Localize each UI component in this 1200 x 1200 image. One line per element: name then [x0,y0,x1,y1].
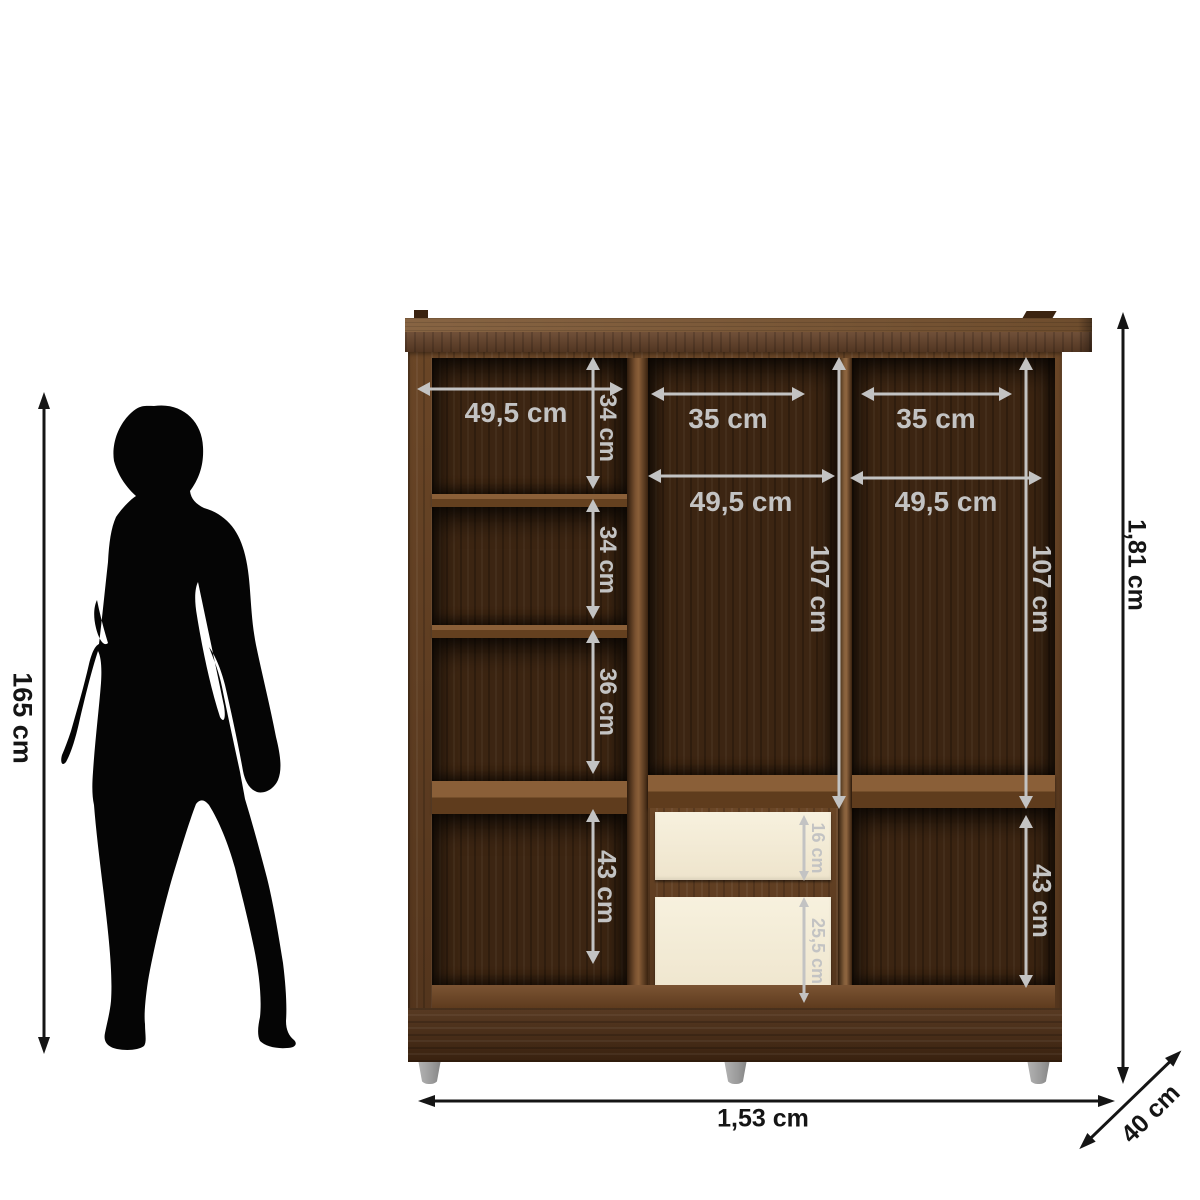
dim-arrow-total-height [1114,313,1131,1083]
dim-label-left-width: 49,5 cm [465,399,568,427]
wardrobe-top-board [405,318,1092,352]
dim-arrow-right-rod [862,385,1011,402]
wardrobe-base [408,1008,1062,1062]
furniture-dimension-diagram: 49,5 cm 34 cm 34 cm 36 cm 43 cm 35 cm 49… [0,0,1200,1200]
dim-label-right-width: 49,5 cm [895,488,998,516]
dim-label-right-bottom-cell: 43 cm [1029,864,1055,938]
dim-label-middle-height: 107 cm [807,545,833,633]
person-silhouette [55,400,305,1052]
dim-label-middle-rod: 35 cm [688,405,767,433]
dim-label-person-height: 165 cm [9,672,36,764]
dim-label-drawer-top: 16 cm [809,822,827,873]
wardrobe-foot [1026,1062,1051,1084]
dim-label-middle-width: 49,5 cm [690,488,793,516]
dim-arrow-person-height [35,393,52,1053]
dim-arrow-middle-width [649,467,834,484]
dim-label-left-cell-2: 34 cm [595,526,619,594]
wardrobe-floor [432,985,1055,1008]
dim-arrow-middle-rod [652,385,804,402]
wardrobe-body [408,352,1062,1062]
dim-arrow-right-width [851,469,1041,486]
dim-label-total-height: 1,81 cm [1124,519,1149,611]
dim-label-total-width: 1,53 cm [717,1107,809,1132]
top-board-front [405,332,1092,352]
wardrobe-foot [723,1062,748,1084]
vertical-divider [627,358,648,985]
dim-label-drawer-bottom: 25,5 cm [809,918,827,984]
dim-label-right-rod: 35 cm [896,405,975,433]
dim-label-right-height: 107 cm [1029,545,1055,633]
shelf [648,775,838,808]
dim-label-left-cell-3: 36 cm [595,668,619,736]
wardrobe-foot [417,1062,442,1084]
top-board-surface [405,318,1092,332]
dim-label-left-cell-4: 43 cm [594,850,620,924]
dim-label-left-cell-1: 34 cm [595,394,619,462]
